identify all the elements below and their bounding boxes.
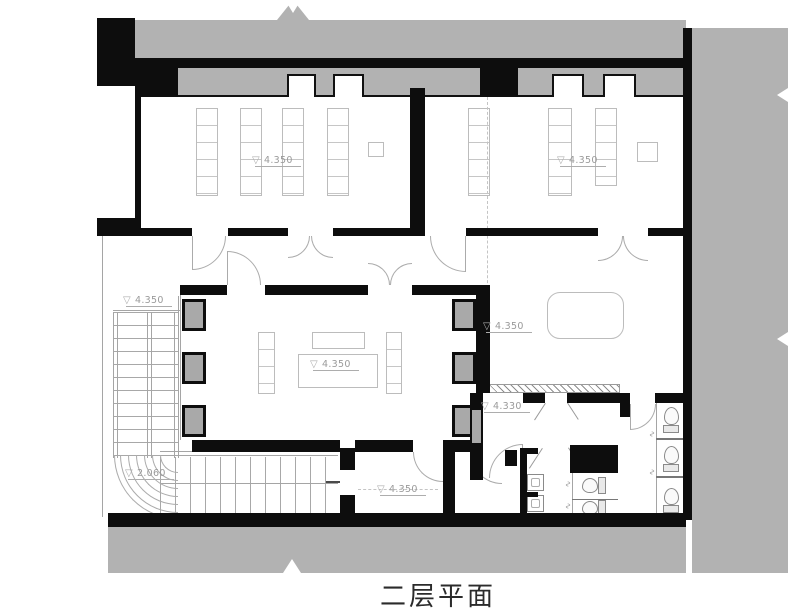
gray-band-bottom: [108, 527, 686, 573]
display-table: [312, 332, 365, 349]
wall-segment: [108, 513, 686, 527]
stair-handrail: [147, 312, 148, 458]
stair-stringer: [160, 455, 338, 456]
shelf-unit: [327, 108, 349, 196]
level-marker-stair-landing: 4.350▽: [126, 288, 172, 307]
door-leaf: [227, 251, 228, 285]
wall-segment: [265, 285, 368, 295]
level-marker-room-upper-left: 4.350▽: [255, 148, 301, 167]
wall-niche: [470, 408, 483, 445]
wall-segment: [683, 28, 692, 520]
stair-landing-line: [113, 310, 180, 311]
wall-segment: [470, 445, 483, 480]
small-table: [368, 142, 384, 157]
wall-segment: [192, 440, 340, 452]
stair-stringer: [113, 312, 114, 458]
wall-segment: [520, 448, 527, 517]
door-leaf: [630, 404, 631, 430]
door-arc: [288, 236, 310, 258]
window: [287, 74, 316, 97]
wall-segment: [355, 440, 413, 452]
wall-niche: [452, 352, 476, 384]
stall-partition: [656, 476, 683, 478]
wall-niche: [182, 352, 206, 384]
wall-segment: [340, 448, 355, 470]
break-marker-bottom: [283, 559, 301, 573]
stall-partition: [656, 438, 683, 440]
window: [333, 74, 364, 97]
small-table: [637, 142, 658, 162]
partition-break-symbol: ∿: [647, 469, 655, 476]
level-marker-room-middle-right: 4.350▽: [486, 314, 532, 333]
level-marker-room-bottom: 4.350▽: [380, 477, 426, 496]
door-arc: [368, 263, 390, 285]
wall-segment: [505, 450, 517, 466]
wall-segment: [443, 450, 455, 517]
wall-segment: [97, 18, 135, 86]
level-marker-room-upper-right: 4.350▽: [560, 148, 606, 167]
stair-handrail: [160, 483, 338, 484]
hall-wall-line: [180, 295, 181, 440]
shelf-unit: [196, 108, 218, 196]
stair-flight-left: [113, 312, 178, 458]
wall-segment: [476, 285, 490, 393]
washbasin: [527, 495, 544, 512]
toilet-fixture: [663, 488, 680, 512]
washbasin: [527, 474, 544, 491]
door-arc: [390, 263, 412, 285]
level-marker-stair-mid-landing: 2.060▽: [128, 461, 174, 480]
wall-segment: [180, 285, 227, 295]
wall-segment: [97, 218, 135, 236]
stair-stringer: [174, 312, 175, 458]
hatched-wall: [488, 384, 620, 393]
window: [603, 74, 636, 97]
wall-segment: [620, 393, 630, 417]
wall-segment: [135, 58, 178, 97]
toilet-fixture: [582, 477, 606, 494]
stall-front-line: [656, 403, 657, 513]
wall-segment: [410, 88, 425, 228]
site-boundary-line: [102, 236, 103, 517]
meeting-table: [547, 292, 624, 339]
drawing-title: 二层平面: [38, 576, 800, 613]
partition-break-symbol: ∿: [647, 431, 655, 438]
wall-segment: [466, 228, 598, 236]
partition-break-symbol: ∿: [563, 503, 571, 510]
door-leaf: [465, 236, 466, 272]
door-arc: [311, 236, 333, 258]
partition-break-symbol: ∿: [563, 481, 571, 488]
gray-band-right: [692, 28, 788, 573]
door-arc: [623, 236, 648, 261]
door-arc: [227, 251, 261, 285]
toilet-fixture: [663, 407, 680, 433]
stall-front-line: [572, 473, 573, 517]
shelf-unit: [258, 332, 275, 394]
wall-segment: [135, 97, 141, 228]
swing-door-leaf: [534, 403, 546, 420]
wall-segment: [228, 228, 288, 236]
shelf-unit: [386, 332, 402, 394]
door-arc: [630, 404, 656, 430]
stair-stringer: [117, 312, 118, 458]
break-marker-right: [777, 88, 788, 102]
door-arc: [598, 236, 623, 261]
shelf-unit: [595, 108, 617, 186]
break-marker-top-notch: [285, 0, 301, 13]
grid-dashed-line: [487, 97, 488, 298]
level-marker-toilet-vestibule: 4.330▽: [484, 394, 530, 413]
duct-shaft: [570, 445, 618, 473]
toilet-fixture: [663, 446, 680, 472]
wall-segment: [333, 228, 425, 236]
wall-segment: [412, 285, 476, 295]
wall-segment: [527, 492, 538, 497]
window: [552, 74, 584, 97]
wall-segment: [648, 228, 683, 236]
wall-segment: [135, 228, 192, 236]
stair-stringer: [178, 296, 179, 458]
wall-segment: [480, 58, 518, 97]
floor-plan-drawing: ∿ ∿ ∿ ∿: [0, 0, 800, 614]
wall-segment: [527, 448, 538, 454]
wall-niche: [182, 299, 206, 331]
swing-door-leaf: [567, 402, 579, 419]
stair-handrail: [151, 312, 152, 458]
wall-segment: [135, 58, 686, 68]
wall-niche: [182, 405, 206, 437]
wall-niche: [452, 299, 476, 331]
wall-segment: [655, 393, 683, 403]
door-leaf: [192, 236, 193, 270]
stair-flight-bottom: [160, 457, 338, 513]
door-arc: [430, 236, 466, 272]
break-marker-right: [777, 332, 788, 346]
door-arc: [192, 236, 226, 270]
level-marker-hall: 4.350▽: [313, 352, 359, 371]
stair-direction-tick: [326, 481, 340, 483]
wall-segment: [340, 495, 355, 517]
